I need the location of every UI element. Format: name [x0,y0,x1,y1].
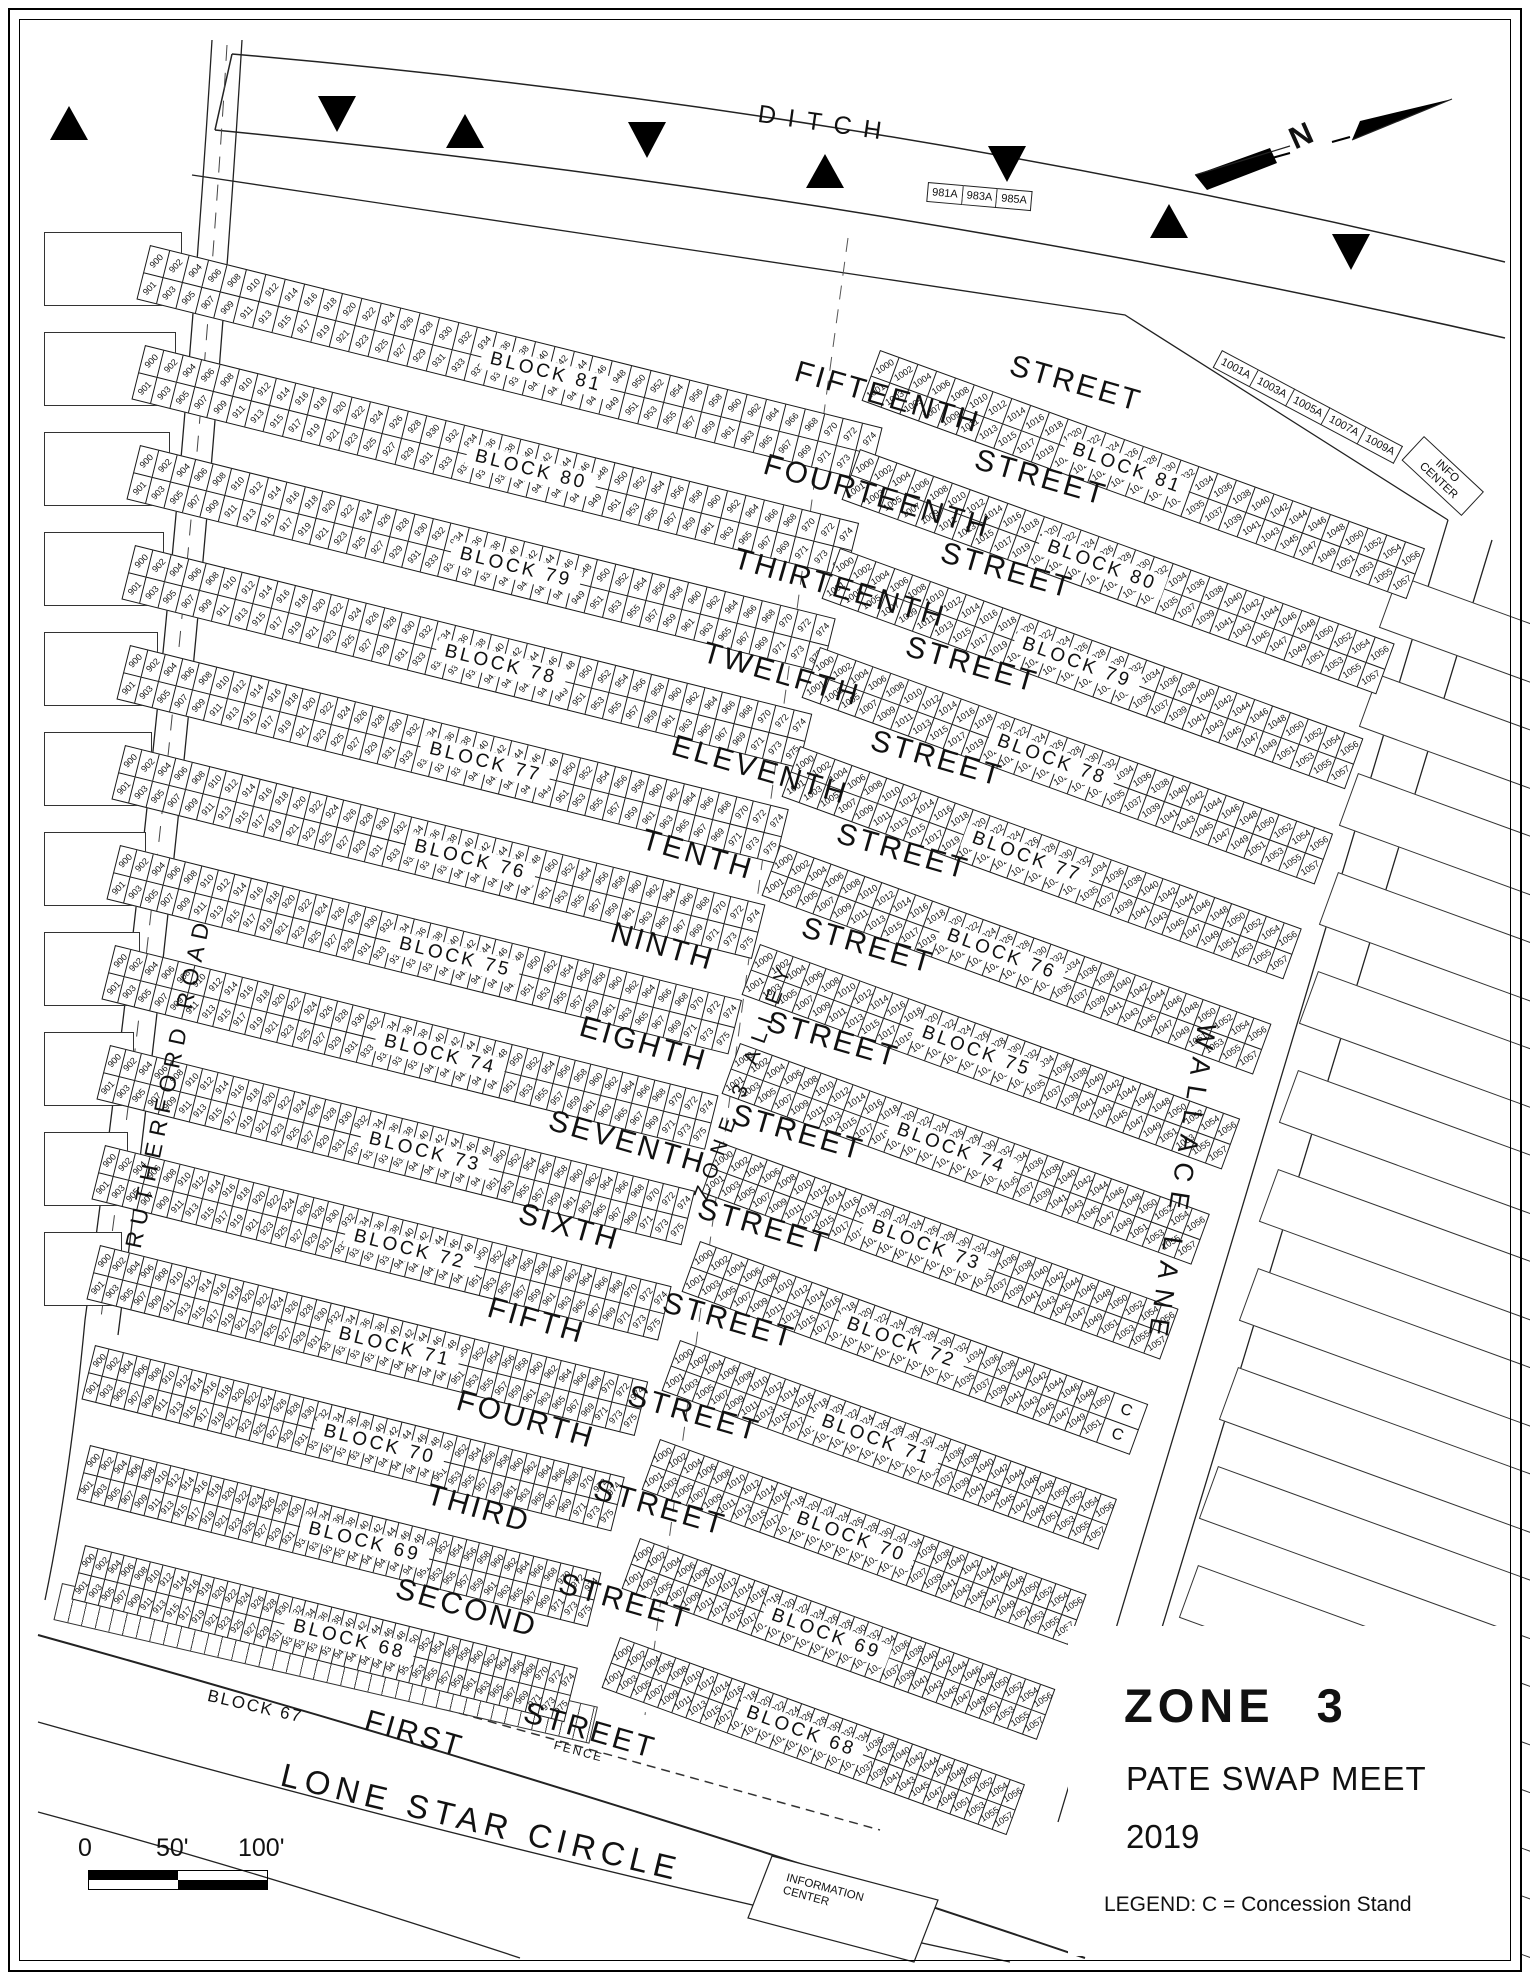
lot-number: 929 [351,838,369,856]
lot-number: 953 [535,985,553,1003]
lot-number: 958 [590,970,608,988]
lot-number: 972 [796,616,814,634]
lot-number: 914 [274,385,292,403]
lot-number: 915 [259,511,277,529]
north-arrow-shaft [1272,153,1290,158]
lot-number: 911 [222,502,239,519]
lot-number: 907 [192,393,210,411]
lot-number: 916 [284,489,302,507]
lot-number: 908 [182,868,200,886]
ditch-arrow-icon [50,106,88,140]
lot-number: 906 [186,566,204,584]
lot-number: 910 [198,872,216,890]
lot-number: 1056 [1399,548,1421,567]
lot-number: 970 [822,420,840,438]
lot-number: 903 [143,583,161,601]
lot-number: 930 [362,913,380,931]
lot-number: 926 [352,708,370,726]
lot-number: 927 [357,637,375,655]
event-title: PATE SWAP MEET [1126,1760,1427,1798]
lot-number: 906 [206,267,224,285]
lot-number: 927 [345,735,363,753]
lot-number: 954 [649,479,667,497]
lot-number: 914 [257,583,275,601]
lot-number: 913 [257,308,275,326]
lot-number: 959 [622,804,640,822]
lot-number: 963 [698,620,716,638]
lot-number: 917 [240,911,258,929]
lot-marker-tag: 983A [962,185,998,208]
lot-number: 919 [286,619,304,637]
zone3-swap-meet-map: DITCH RUTHERFORD ROAD WALLACE LANE LONE … [0,0,1530,1980]
lot-number: 923 [311,726,329,744]
lot-number: 954 [631,575,649,593]
lot-number: 955 [551,989,569,1007]
lot-number: 920 [340,300,358,318]
lot-number: 950 [560,760,578,778]
lot-number: 970 [755,708,773,726]
lot-number: 955 [624,602,642,620]
lot-number: 907 [159,891,177,909]
lot-number: 933 [410,650,428,668]
lot-number: 952 [577,764,595,782]
lot-number: 917 [259,713,277,731]
lot-number: 960 [626,878,644,896]
lot-number: 910 [229,475,247,493]
lot-marker-tag: 981A [926,182,963,205]
zone-title: ZONE 3 [1124,1678,1348,1733]
lot-number: 959 [661,611,679,629]
ditch-top-edge [232,54,1505,262]
lot-number: 952 [648,377,666,395]
lot-number: 968 [737,703,755,721]
lot-number: 925 [372,337,390,355]
ditch-arrow-icon [988,146,1026,182]
lot-number: 918 [321,296,339,314]
lot-number: 923 [321,628,339,646]
lot-number: 916 [256,786,274,804]
lot-number: 954 [594,769,612,787]
lot-number: 921 [293,722,311,740]
lot-number: 900 [132,552,150,570]
lot-number: 933 [384,846,402,864]
lot-number: 907 [179,592,197,610]
lot-number: 904 [168,561,186,579]
lot-number: 905 [180,289,198,307]
lot-number: 921 [273,920,291,938]
lot-number: 962 [664,786,682,804]
lot-number: 924 [335,704,353,722]
lot-number: 953 [570,791,588,809]
lot-number: 912 [231,678,249,696]
lot-number: 962 [684,690,702,708]
lot-number: 928 [405,418,423,436]
lot-number: 910 [213,674,231,692]
lot-number: 917 [250,812,268,830]
lot-number: 900 [143,352,161,370]
lot-number: 931 [392,646,410,664]
lot-number: 921 [314,525,332,543]
lot-number: 929 [375,641,393,659]
lot-number: 905 [155,688,173,706]
lot-number: 960 [725,396,743,414]
lot-number: 920 [320,498,338,516]
lot-number: 910 [206,773,224,791]
lot-number: 911 [207,701,224,718]
lot-number: 901 [141,279,159,297]
scale-label-100: 100' [238,1834,284,1863]
lot-number: 904 [155,761,173,779]
lot-number: 910 [236,376,254,394]
lot-number: 953 [624,501,642,519]
lot-number: 902 [150,557,168,575]
lot-number: 958 [706,392,724,410]
lot-number: 962 [623,978,641,996]
lot-number: 928 [357,811,375,829]
lot-number: 971 [771,639,789,657]
lot-number: 925 [339,632,357,650]
lot-number: 918 [292,592,310,610]
lot-number: 927 [322,932,340,950]
lot-number: 968 [672,991,690,1009]
lot-number: 956 [574,966,592,984]
lot-number: 914 [239,782,257,800]
ditch-bottom-edge [215,130,1505,338]
lot-number: 906 [179,665,197,683]
lot-number: 929 [339,936,357,954]
lot-number: 925 [328,731,346,749]
lot-number: 972 [818,521,836,539]
lot-number: 913 [232,606,250,624]
lot-number: 956 [687,387,705,405]
lot-number: 927 [380,440,398,458]
lot-number: 912 [255,380,273,398]
lot-number: 922 [317,700,335,718]
lot-number: 906 [172,765,190,783]
lot-number: 900 [122,752,140,770]
lot-number: 970 [688,995,706,1013]
lot-number: 919 [266,817,284,835]
lot-number: 952 [559,861,577,879]
lot-number: 972 [750,808,768,826]
lot-number: 905 [173,388,191,406]
lot-number: 908 [189,769,207,787]
lot-number: 951 [588,593,606,611]
lot-number: 925 [350,534,368,552]
lot-number: 966 [698,795,716,813]
lot-number: 968 [694,895,712,913]
lot-number: 926 [375,512,393,530]
lot-number: 924 [379,310,397,328]
lot-number: 955 [606,699,624,717]
lot-number: 911 [230,403,247,420]
lot-number: 962 [745,401,763,419]
lot-number: 951 [623,399,641,417]
ditch-arrow-icon [318,96,356,132]
lot-number: 1057 [1390,573,1412,592]
lot-number: 957 [624,703,642,721]
lot-number: 923 [300,825,318,843]
lot-number: 920 [330,399,348,417]
lot-number: 953 [553,888,571,906]
lot-number: 974 [814,621,832,639]
lot-number: 921 [303,623,321,641]
lot-number: 908 [218,371,236,389]
lot-number: 915 [233,808,251,826]
lot-number: 962 [643,882,661,900]
lot-number: 933 [449,356,467,374]
lot-number: 916 [302,291,320,309]
lot-number: 964 [702,694,720,712]
lot-number: 956 [593,870,611,888]
lot-number: 909 [218,298,236,316]
lot-number: 928 [381,614,399,632]
lot-number: 1057 [1329,763,1351,782]
lot-number: 922 [338,502,356,520]
lot-number: 918 [302,493,320,511]
lot-number: 909 [189,696,207,714]
lot-number: 928 [393,516,411,534]
lot-number: 918 [273,790,291,808]
lot-number: 930 [412,521,430,539]
lot-number: 900 [127,652,145,670]
lot-number: 919 [305,421,323,439]
lot-number: 924 [324,803,342,821]
lot-number: 959 [642,708,660,726]
lot-number: 917 [277,516,295,534]
lot-number: 910 [244,276,262,294]
lot-number: 928 [369,713,387,731]
legend-text: LEGEND: C = Concession Stand [1104,1893,1412,1917]
lot-number: 964 [639,983,657,1001]
lot-number: 955 [588,795,606,813]
lot-number: 966 [783,411,801,429]
lot-number: 961 [719,423,737,441]
scale-label-0: 0 [78,1834,92,1863]
lot-number: 915 [224,907,242,925]
lot-number: 952 [541,958,559,976]
lot-number: 966 [741,603,759,621]
scale-bar-segment [89,1871,178,1880]
lot-number: 909 [182,796,200,814]
lot-number: 960 [607,974,625,992]
lot-number: 932 [391,819,409,837]
lot-number: 973 [789,643,807,661]
lot-number: 975 [668,1220,686,1238]
lot-number: 957 [661,510,679,528]
lot-number: 924 [368,409,386,427]
lot-number: 929 [399,445,417,463]
lot-number: 913 [240,506,258,524]
lot-number: 905 [167,488,185,506]
lot-number: 912 [247,480,265,498]
lot-number: 1056 [1338,738,1360,757]
lot-number: 927 [334,833,352,851]
lot-number: 931 [417,449,435,467]
lot-number: 930 [387,717,405,735]
lot-number: 933 [436,454,454,472]
ditch-arrow-icon [1150,204,1188,238]
lot-number: 913 [216,804,234,822]
lot-number: 921 [283,821,301,839]
lot-number: 930 [424,423,442,441]
lot-number: 951 [605,496,623,514]
lot-number: 970 [733,803,751,821]
lot-number: 901 [115,779,133,797]
lot-number: 929 [411,346,429,364]
lot-number: 973 [744,834,762,852]
lot-number: 930 [437,324,455,342]
lot-number: 924 [346,606,364,624]
lot-number: 975 [714,1030,732,1048]
lot-number: 901 [125,579,143,597]
lot-number: 918 [312,395,330,413]
lot-number: 903 [149,484,167,502]
lot-number: 931 [430,351,448,369]
lot-number: 975 [691,1125,709,1143]
lot-number: 1056 [1277,929,1299,948]
lot-number: 923 [332,529,350,547]
lot-number: 914 [265,484,283,502]
lot-number: 954 [576,865,594,883]
lot-number: 958 [687,488,705,506]
lot-number: 971 [682,1021,700,1039]
lot-number: 914 [248,682,266,700]
lot-number: 968 [802,416,820,434]
lot-number: 927 [368,538,386,556]
lot-marker-tag: 985A [996,188,1032,211]
lot-number: 917 [295,318,313,336]
lot-number: 912 [214,877,232,895]
lot-number: 916 [275,588,293,606]
lot-number: 929 [363,739,381,757]
lot-number: 951 [518,981,536,999]
lot-number: 928 [417,320,435,338]
lot-number: 912 [263,281,281,299]
lot-number: 974 [721,1003,739,1021]
lot-number: 911 [215,601,232,618]
lot-number: 966 [762,507,780,525]
lot-number: 956 [668,483,686,501]
lot-number: 973 [698,1025,716,1043]
lot-number: 956 [630,677,648,695]
lot-number: 914 [231,881,249,899]
lot-number: 932 [430,525,448,543]
lot-number: 957 [680,414,698,432]
lot-number: 963 [718,524,736,542]
lot-number: 903 [138,683,156,701]
lot-number: 1056 [1308,834,1330,853]
lot-number: 917 [268,614,286,632]
lot-number: 953 [606,598,624,616]
lot-number: 926 [398,315,416,333]
lot-number: 954 [613,672,631,690]
lot-number: 902 [138,756,156,774]
lot-number: 974 [767,812,785,830]
lot-number: 963 [738,428,756,446]
lot-number: 907 [165,791,183,809]
lot-number: 916 [293,390,311,408]
lot-number: 1056 [1369,643,1391,662]
ditch-arrow-icon [806,154,844,188]
lot-number: 908 [210,471,228,489]
lot-number: 903 [126,883,144,901]
lot-number: 970 [800,516,818,534]
lot-number: 933 [423,552,441,570]
lot-number: 926 [387,413,405,431]
lot-number: 901 [136,379,154,397]
lot-number: 909 [175,895,193,913]
lot-number: 974 [698,1098,716,1116]
lot-number: 964 [764,406,782,424]
lot-number: 957 [605,800,623,818]
lot-number: 927 [392,342,410,360]
lot-number: 906 [199,366,217,384]
lot-number: 974 [791,716,809,734]
lot-number: 909 [211,398,229,416]
lot-number: 959 [680,515,698,533]
lot-number: 931 [405,547,423,565]
lot-number: 951 [553,787,571,805]
lot-number: 907 [186,493,204,511]
lot-number: 970 [777,612,795,630]
lot-number: 972 [727,903,745,921]
lot-number: 962 [704,594,722,612]
lot-number: 911 [199,800,216,817]
lot-number: 904 [174,461,192,479]
lot-number: 915 [241,709,259,727]
lot-number: 902 [161,357,179,375]
lot-number: 1057 [1268,954,1290,973]
lot-number: 910 [221,574,239,592]
lot-number: 954 [558,962,576,980]
lot-number: 905 [149,787,167,805]
lot-number: 924 [357,507,375,525]
lot-number: 971 [726,830,744,848]
lot-number: 957 [586,896,604,914]
lot-number: 902 [156,457,174,475]
lot-number: 908 [203,570,221,588]
lot-number: 1057 [1359,668,1381,687]
lot-number: 912 [223,777,241,795]
lot-number: 924 [313,901,331,919]
lot-number: 918 [283,691,301,709]
lot-number: 931 [380,744,398,762]
lot-number: 966 [656,987,674,1005]
lot-number: 914 [283,286,301,304]
lot-number: 901 [131,479,149,497]
lot-number: 919 [314,322,332,340]
lot-number: 904 [186,262,204,280]
lot-number: 920 [310,597,328,615]
lot-number: 971 [704,926,722,944]
lot-number: 973 [721,930,739,948]
lot-number: 952 [631,474,649,492]
lot-number: 903 [160,284,178,302]
lot-number: 958 [610,874,628,892]
lot-number: 922 [360,305,378,323]
lot-number: 951 [570,690,588,708]
lot-number: 968 [781,512,799,530]
lot-number: 952 [595,668,613,686]
lot-number: 950 [542,857,560,875]
lot-number: 974 [744,907,762,925]
lot-number: 966 [719,699,737,717]
lot-number: 926 [364,610,382,628]
lot-number: 901 [120,679,138,697]
lot-number: 955 [569,892,587,910]
lot-number: 961 [659,712,677,730]
